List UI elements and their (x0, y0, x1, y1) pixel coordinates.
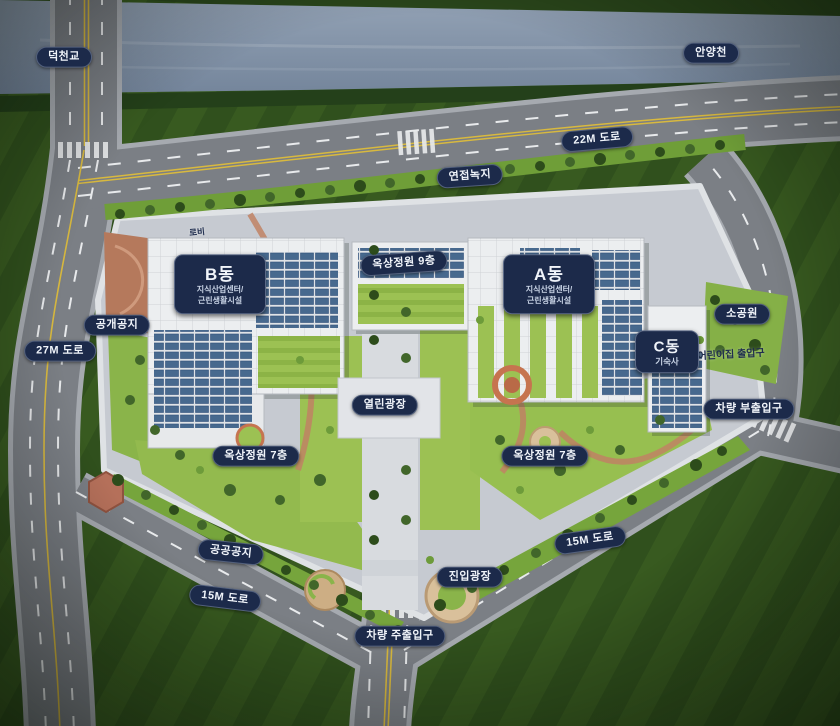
label-road-27m: 27M 도로 (24, 341, 96, 362)
building-c-label: C동 기숙사 (635, 330, 699, 373)
label-overlay: 덕천교 안양천 22M 도로 연접녹지 로비 옥상정원 9층 소공원 어린이집 … (0, 0, 840, 726)
label-rooftop-garden-7f-left: 옥상정원 7층 (212, 446, 299, 467)
label-deokcheon-bridge: 덕천교 (36, 47, 92, 68)
building-b-desc: 지식산업센터/근린생활시설 (185, 285, 255, 307)
building-a-name: A동 (514, 260, 584, 285)
label-open-plaza: 열린광장 (352, 395, 418, 416)
label-anyangcheon: 안양천 (683, 43, 739, 64)
building-b-name: B동 (185, 260, 255, 285)
label-vehicle-main-entrance: 차량 주출입구 (354, 626, 445, 647)
label-lobby: 로비 (189, 225, 206, 239)
label-public-space: 공공공지 (197, 538, 265, 565)
building-c-desc: 기숙사 (645, 356, 689, 367)
label-road-15m-right: 15M 도로 (553, 525, 627, 555)
label-small-park: 소공원 (714, 304, 770, 325)
label-daycare-entrance: 어린이집 출입구 (697, 344, 765, 362)
building-c-name: C동 (645, 335, 689, 356)
label-vehicle-sub-entrance: 차량 부출입구 (703, 399, 794, 420)
building-a-desc: 지식산업센터/근린생활시설 (514, 285, 584, 307)
label-rooftop-garden-7f-right: 옥상정원 7층 (501, 446, 588, 467)
building-a-label: A동 지식산업센터/근린생활시설 (503, 254, 595, 314)
site-plan-screenshot: 덕천교 안양천 22M 도로 연접녹지 로비 옥상정원 9층 소공원 어린이집 … (0, 0, 840, 726)
label-entry-plaza: 진입광장 (437, 567, 503, 588)
label-public-open-space: 공개공지 (84, 315, 150, 336)
label-road-22m: 22M 도로 (560, 126, 633, 153)
label-adjacent-green: 연접녹지 (436, 163, 504, 188)
building-b-label: B동 지식산업센터/근린생활시설 (174, 254, 266, 314)
label-rooftop-garden-9f: 옥상정원 9층 (360, 250, 449, 277)
label-road-15m-left: 15M 도로 (188, 583, 262, 612)
